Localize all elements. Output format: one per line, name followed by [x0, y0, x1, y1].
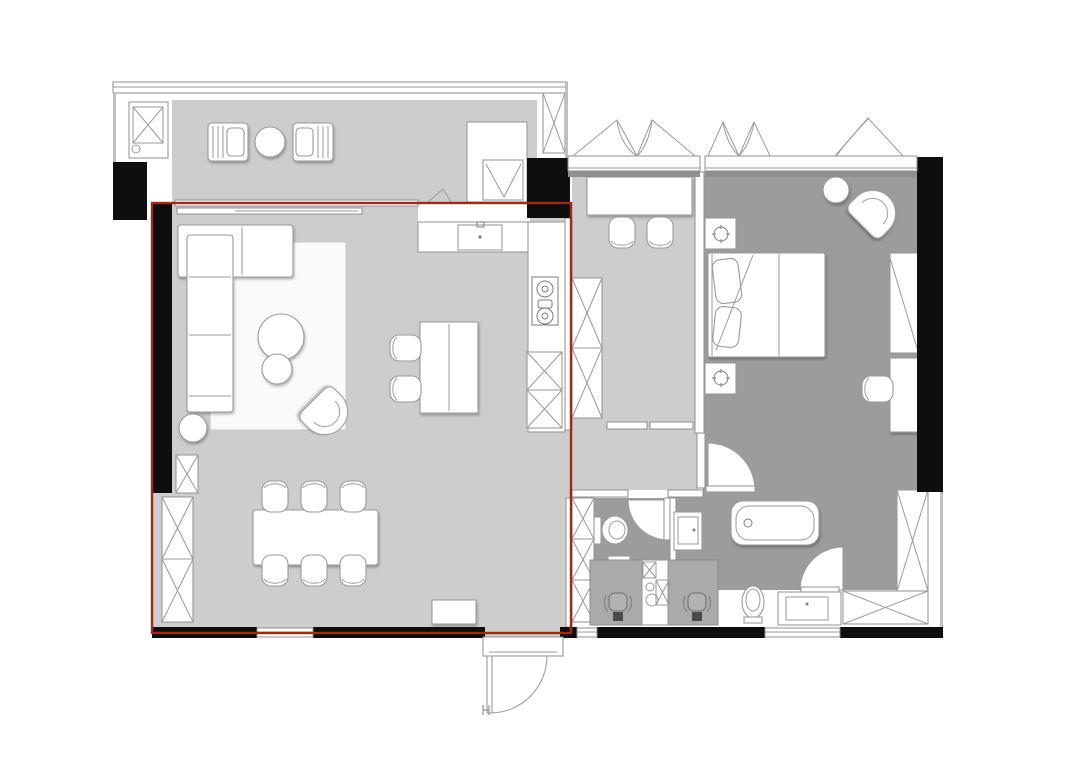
- coffee-table-small: [262, 354, 292, 384]
- coffee-table-large: [258, 314, 304, 360]
- bottom-window-3: [765, 628, 840, 637]
- dining-chair: [262, 555, 288, 586]
- shoe-cabinet: [432, 600, 476, 624]
- study-door-sill-a: [607, 422, 647, 429]
- outer-edge-right: [940, 492, 943, 627]
- balcony-left-edge: [113, 93, 116, 162]
- pillow: [711, 258, 742, 305]
- kitchen-floor-strip: [418, 202, 530, 222]
- wall-hall-toilet-b: [668, 490, 703, 497]
- dining-chair: [301, 555, 327, 586]
- dressing-door-leaf: [801, 587, 839, 592]
- appliance-box: [483, 160, 523, 200]
- casement-arc: [837, 119, 868, 155]
- wall-hall-toilet-a: [572, 490, 628, 497]
- toilet-2: [742, 586, 764, 623]
- vanity-faucet: [806, 603, 809, 606]
- entry-door-swing: [492, 656, 547, 713]
- pillow: [712, 306, 742, 348]
- entry-vestibule: [483, 637, 563, 656]
- side-table: [179, 414, 207, 442]
- dressing-area: [590, 556, 718, 625]
- dining-chair: [262, 481, 288, 512]
- toilet-1: [594, 516, 628, 544]
- casement-arcs: [723, 123, 754, 156]
- bedroom-door-leaf: [706, 486, 755, 492]
- nightstand-bottom: [705, 363, 736, 394]
- dining-chair: [340, 555, 366, 586]
- washing-machine: [129, 102, 168, 158]
- bathtub: [731, 501, 819, 545]
- casement-triangles: [708, 122, 770, 156]
- study-window: [568, 120, 700, 177]
- wall-bottom-5: [840, 627, 943, 638]
- dining-chair: [301, 481, 327, 512]
- casement-triangles: [573, 120, 695, 156]
- toilet-bowl: [602, 516, 628, 544]
- toilet-base: [744, 617, 762, 623]
- lounge-chair-left: [208, 123, 248, 161]
- floor-plan-svg: apartment floor plan with living-dining-…: [0, 0, 1080, 763]
- laundry-utility-unit: [642, 560, 668, 625]
- wall-bottom-4: [597, 627, 765, 638]
- hallway-floor: [572, 428, 698, 490]
- balcony-round-table: [255, 127, 285, 157]
- basin-faucet: [693, 529, 696, 532]
- wall-hall-bedroom: [697, 433, 705, 488]
- bedroom-side-table: [823, 177, 849, 203]
- sink-drain: [478, 235, 481, 238]
- study-door-sill-b: [650, 422, 693, 429]
- wall-column-left: [113, 162, 147, 220]
- dressing-shelf: [608, 556, 630, 560]
- wall-right: [917, 157, 943, 492]
- wall-study-bedroom: [695, 172, 704, 433]
- toilet-tank: [594, 517, 601, 544]
- bedroom-desk-chair: [862, 376, 893, 402]
- entry-door-leaf: [487, 656, 492, 713]
- wall-column-middle: [527, 158, 570, 218]
- study-chair: [609, 217, 635, 248]
- toilet-door-leaf: [664, 498, 670, 540]
- bar-stool: [390, 376, 421, 402]
- study-desk: [587, 177, 692, 215]
- study-chair: [647, 217, 673, 248]
- double-bed: [708, 253, 825, 357]
- wall-left: [152, 203, 172, 493]
- entrance: [483, 637, 563, 715]
- dining-chair: [340, 481, 366, 512]
- bedroom-desk: [890, 358, 918, 432]
- balcony-right-edge: [565, 82, 568, 158]
- floor-plan-canvas: apartment floor plan with living-dining-…: [0, 0, 1080, 763]
- lounge-chair-right: [293, 123, 333, 161]
- bedroom-window: [705, 118, 917, 177]
- bar-stool: [390, 335, 421, 361]
- casement-triangle: [835, 118, 903, 156]
- bottom-window-2: [577, 628, 597, 637]
- toilet-bowl: [742, 586, 764, 618]
- nightstand-top: [705, 218, 736, 249]
